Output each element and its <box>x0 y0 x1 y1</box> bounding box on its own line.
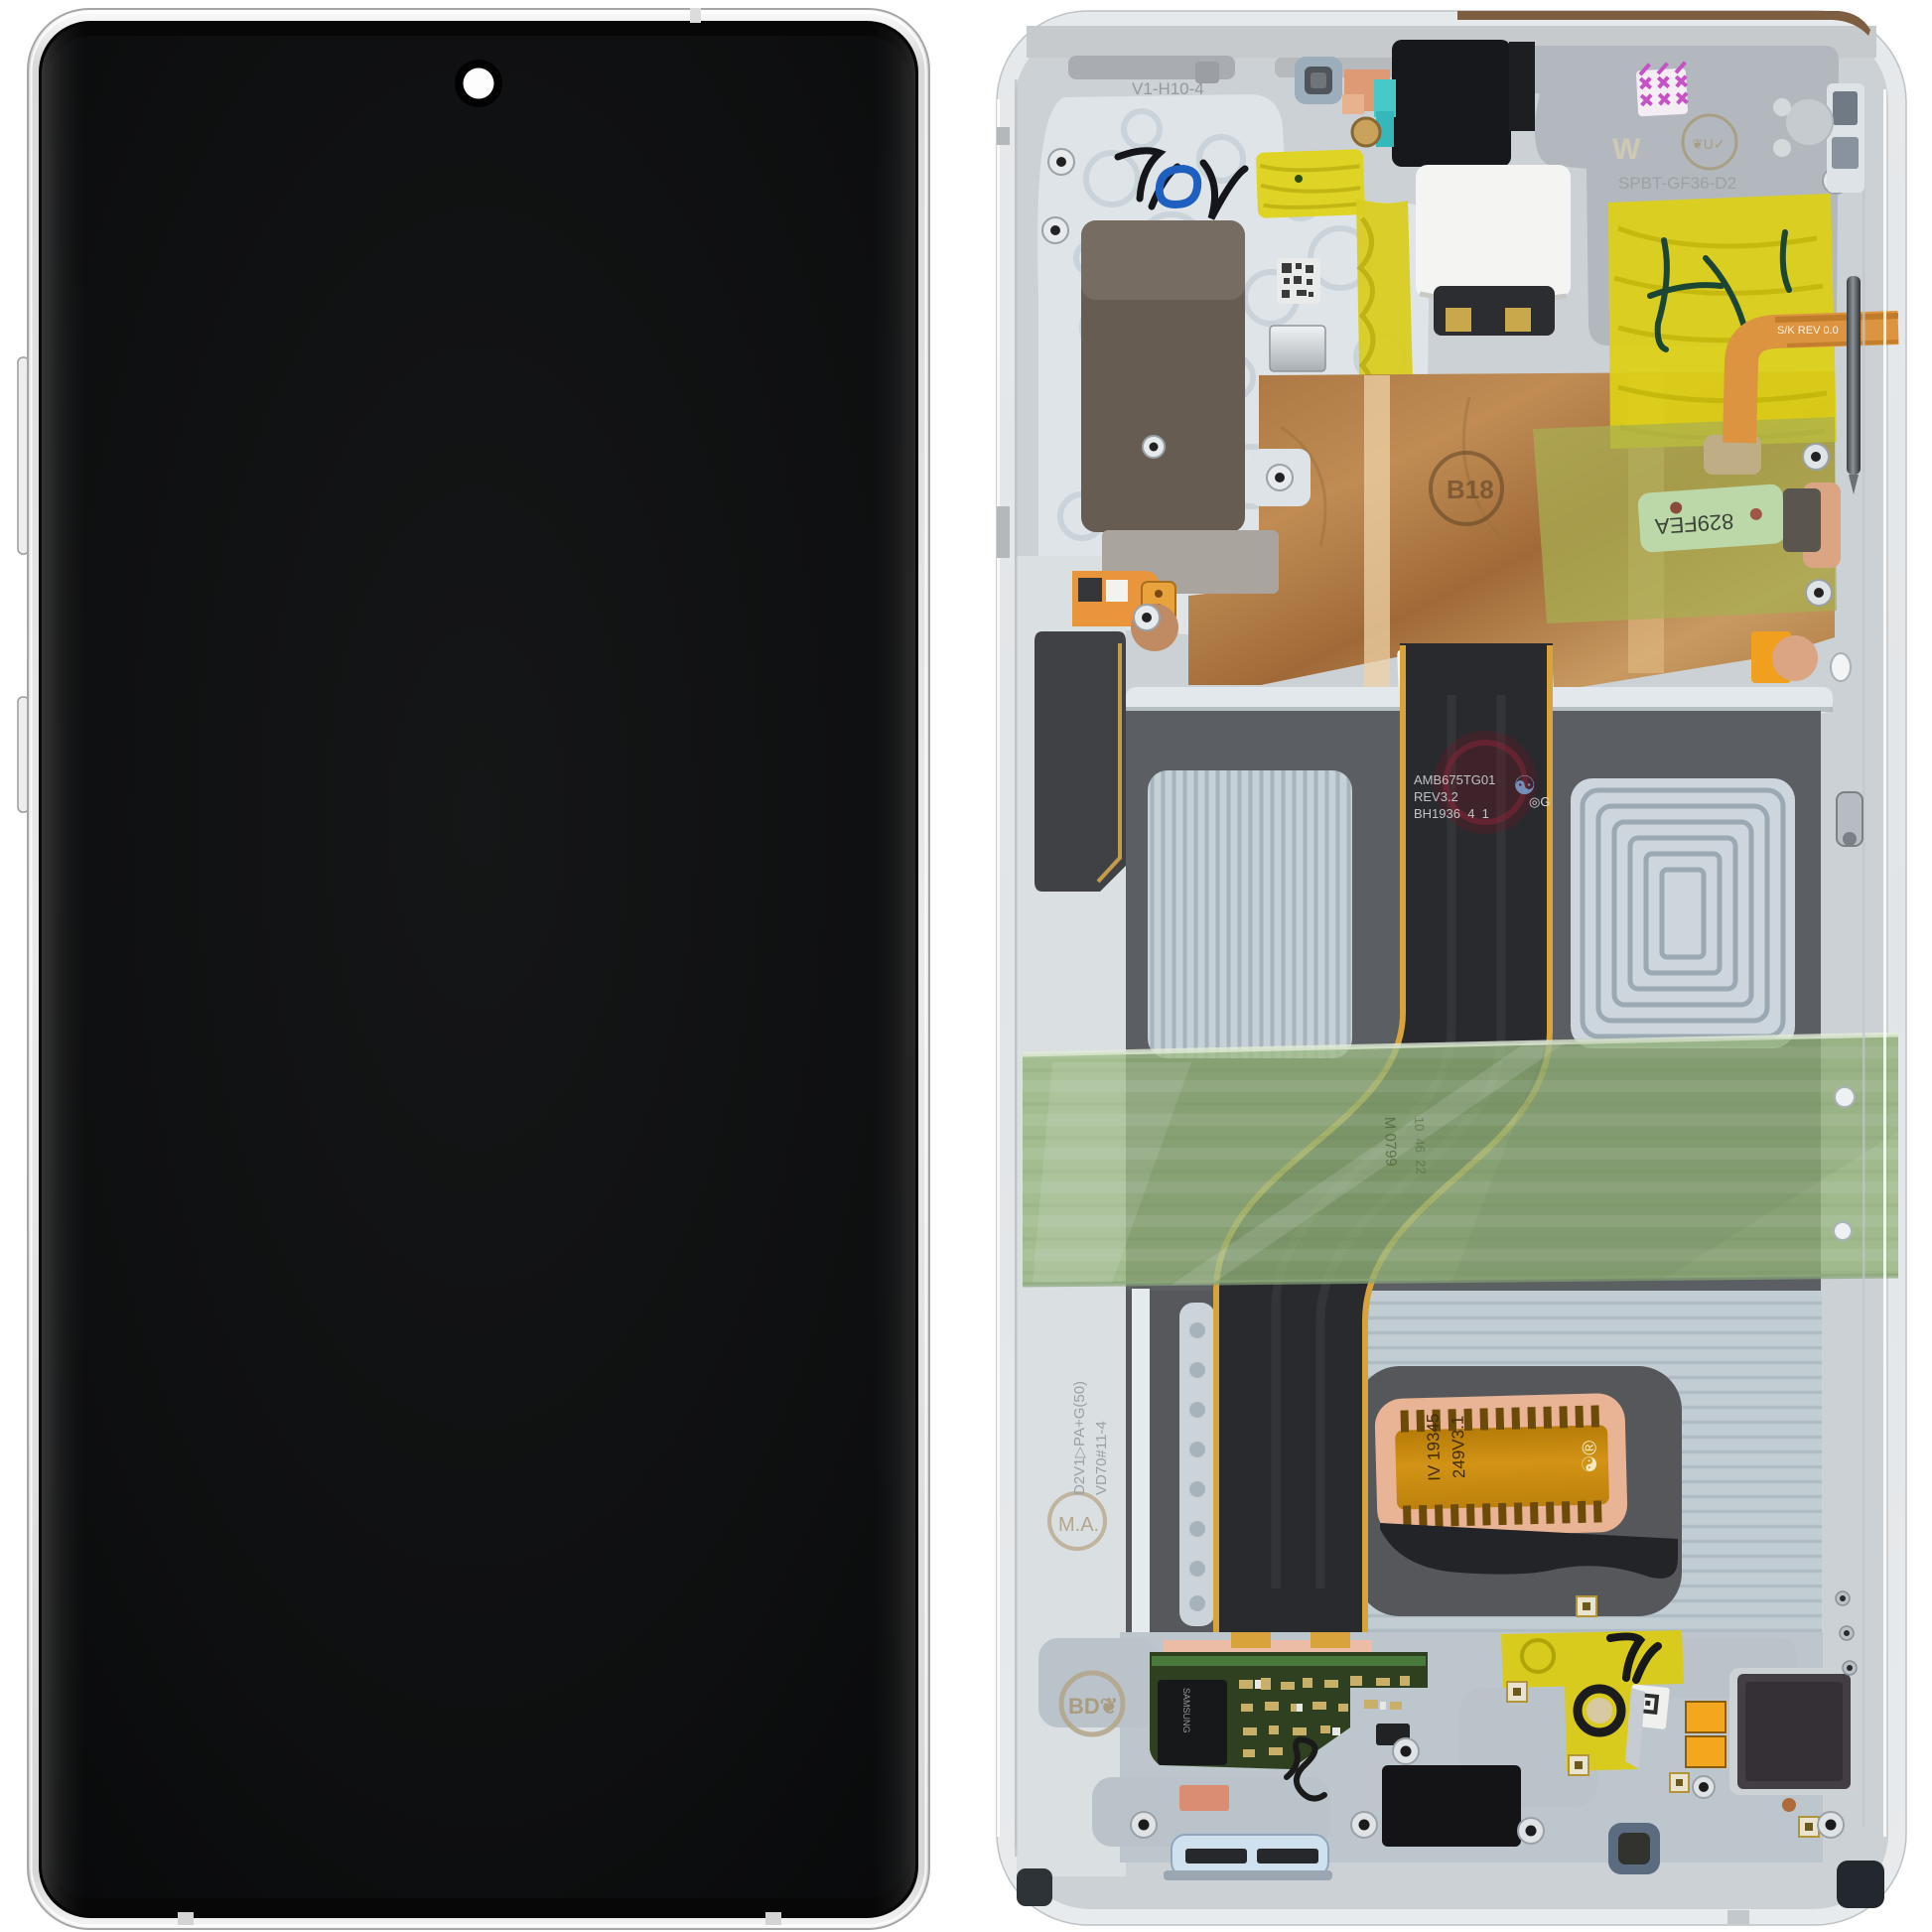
svg-text:10 46 22: 10 46 22 <box>1412 1117 1429 1174</box>
svg-text:W: W <box>1612 133 1641 166</box>
svg-text:V1-H10-4: V1-H10-4 <box>1132 79 1204 98</box>
svg-text:S/K REV 0.0: S/K REV 0.0 <box>1777 325 1839 337</box>
svg-text:D2V1▷PA+G(50): D2V1▷PA+G(50) <box>1071 1381 1088 1495</box>
svg-text:IV 19345: IV 19345 <box>1424 1413 1445 1481</box>
svg-text:☯®: ☯® <box>1579 1440 1601 1472</box>
svg-text:249V3.1: 249V3.1 <box>1449 1416 1469 1479</box>
svg-text:SAMSUNG: SAMSUNG <box>1181 1688 1191 1733</box>
svg-text:❦U✓: ❦U✓ <box>1692 136 1725 152</box>
svg-text:REV3.2: REV3.2 <box>1414 789 1458 804</box>
svg-text:BH1936 4 1: BH1936 4 1 <box>1414 806 1489 821</box>
svg-text:◎G: ◎G <box>1529 794 1550 809</box>
svg-text:M 0799: M 0799 <box>1381 1117 1400 1168</box>
svg-text:VD70#11-4: VD70#11-4 <box>1093 1421 1110 1495</box>
svg-text:AMB675TG01: AMB675TG01 <box>1414 772 1495 787</box>
svg-text:BD❦: BD❦ <box>1068 1694 1118 1719</box>
svg-text:B18: B18 <box>1447 475 1494 504</box>
svg-text:SPBT-GF36-D2: SPBT-GF36-D2 <box>1618 174 1736 193</box>
svg-text:M.A.: M.A. <box>1058 1514 1099 1536</box>
